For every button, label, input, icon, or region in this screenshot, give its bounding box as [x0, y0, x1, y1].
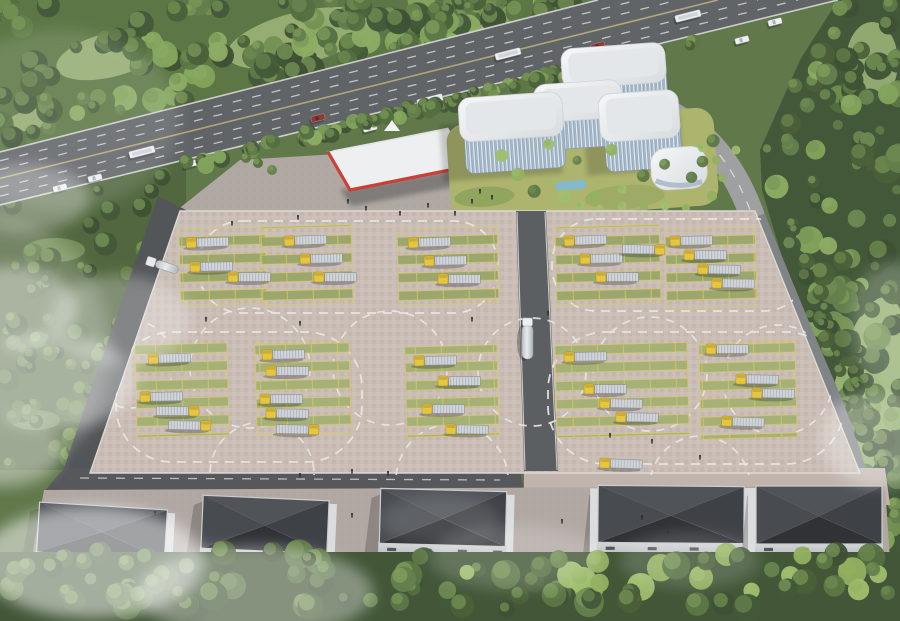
depot-aerial-scene: Aerial rendering of a truck logistics an… — [0, 0, 900, 621]
aerial-rendering: Aerial rendering of a truck logistics an… — [0, 0, 900, 621]
atmosphere-haze — [0, 0, 900, 621]
